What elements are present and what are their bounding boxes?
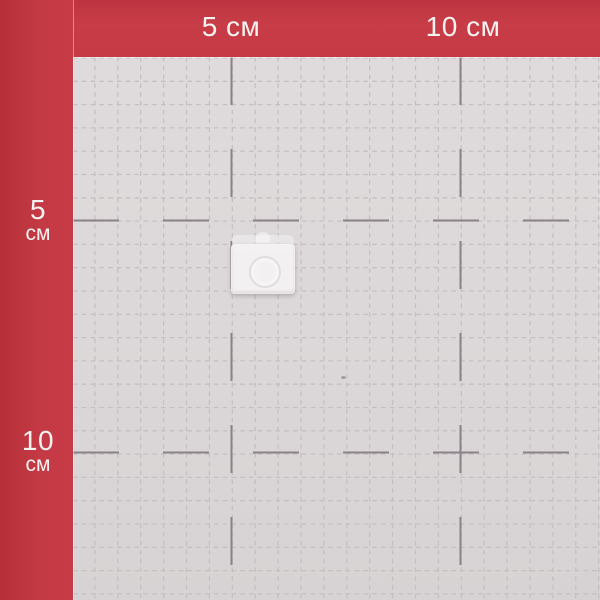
clear-silicone-bumper xyxy=(230,235,296,296)
product-photo: 5 см 10 см 5 см 10 см xyxy=(0,0,600,600)
dust-speck xyxy=(341,376,346,379)
ruler-left-label-10cm-unit: см xyxy=(0,454,76,475)
ruler-top-label-5cm: 5 см xyxy=(202,13,261,41)
bumper-top-highlight xyxy=(256,232,270,243)
ruler-left-label-10cm-value: 10 xyxy=(0,427,76,454)
ruler-top-band: 5 см 10 см xyxy=(0,0,600,57)
ruler-left-label-10cm: 10 см xyxy=(0,427,76,475)
ruler-left-label-5cm-unit: см xyxy=(0,223,76,244)
ruler-top-label-10cm: 10 см xyxy=(426,13,501,41)
measuring-grid xyxy=(0,0,600,600)
ruler-left-label-5cm-value: 5 xyxy=(0,196,76,223)
bumper-inner-ring xyxy=(249,256,281,288)
ruler-left-band: 5 см 10 см xyxy=(0,0,73,600)
ruler-left-label-5cm: 5 см xyxy=(0,196,76,244)
